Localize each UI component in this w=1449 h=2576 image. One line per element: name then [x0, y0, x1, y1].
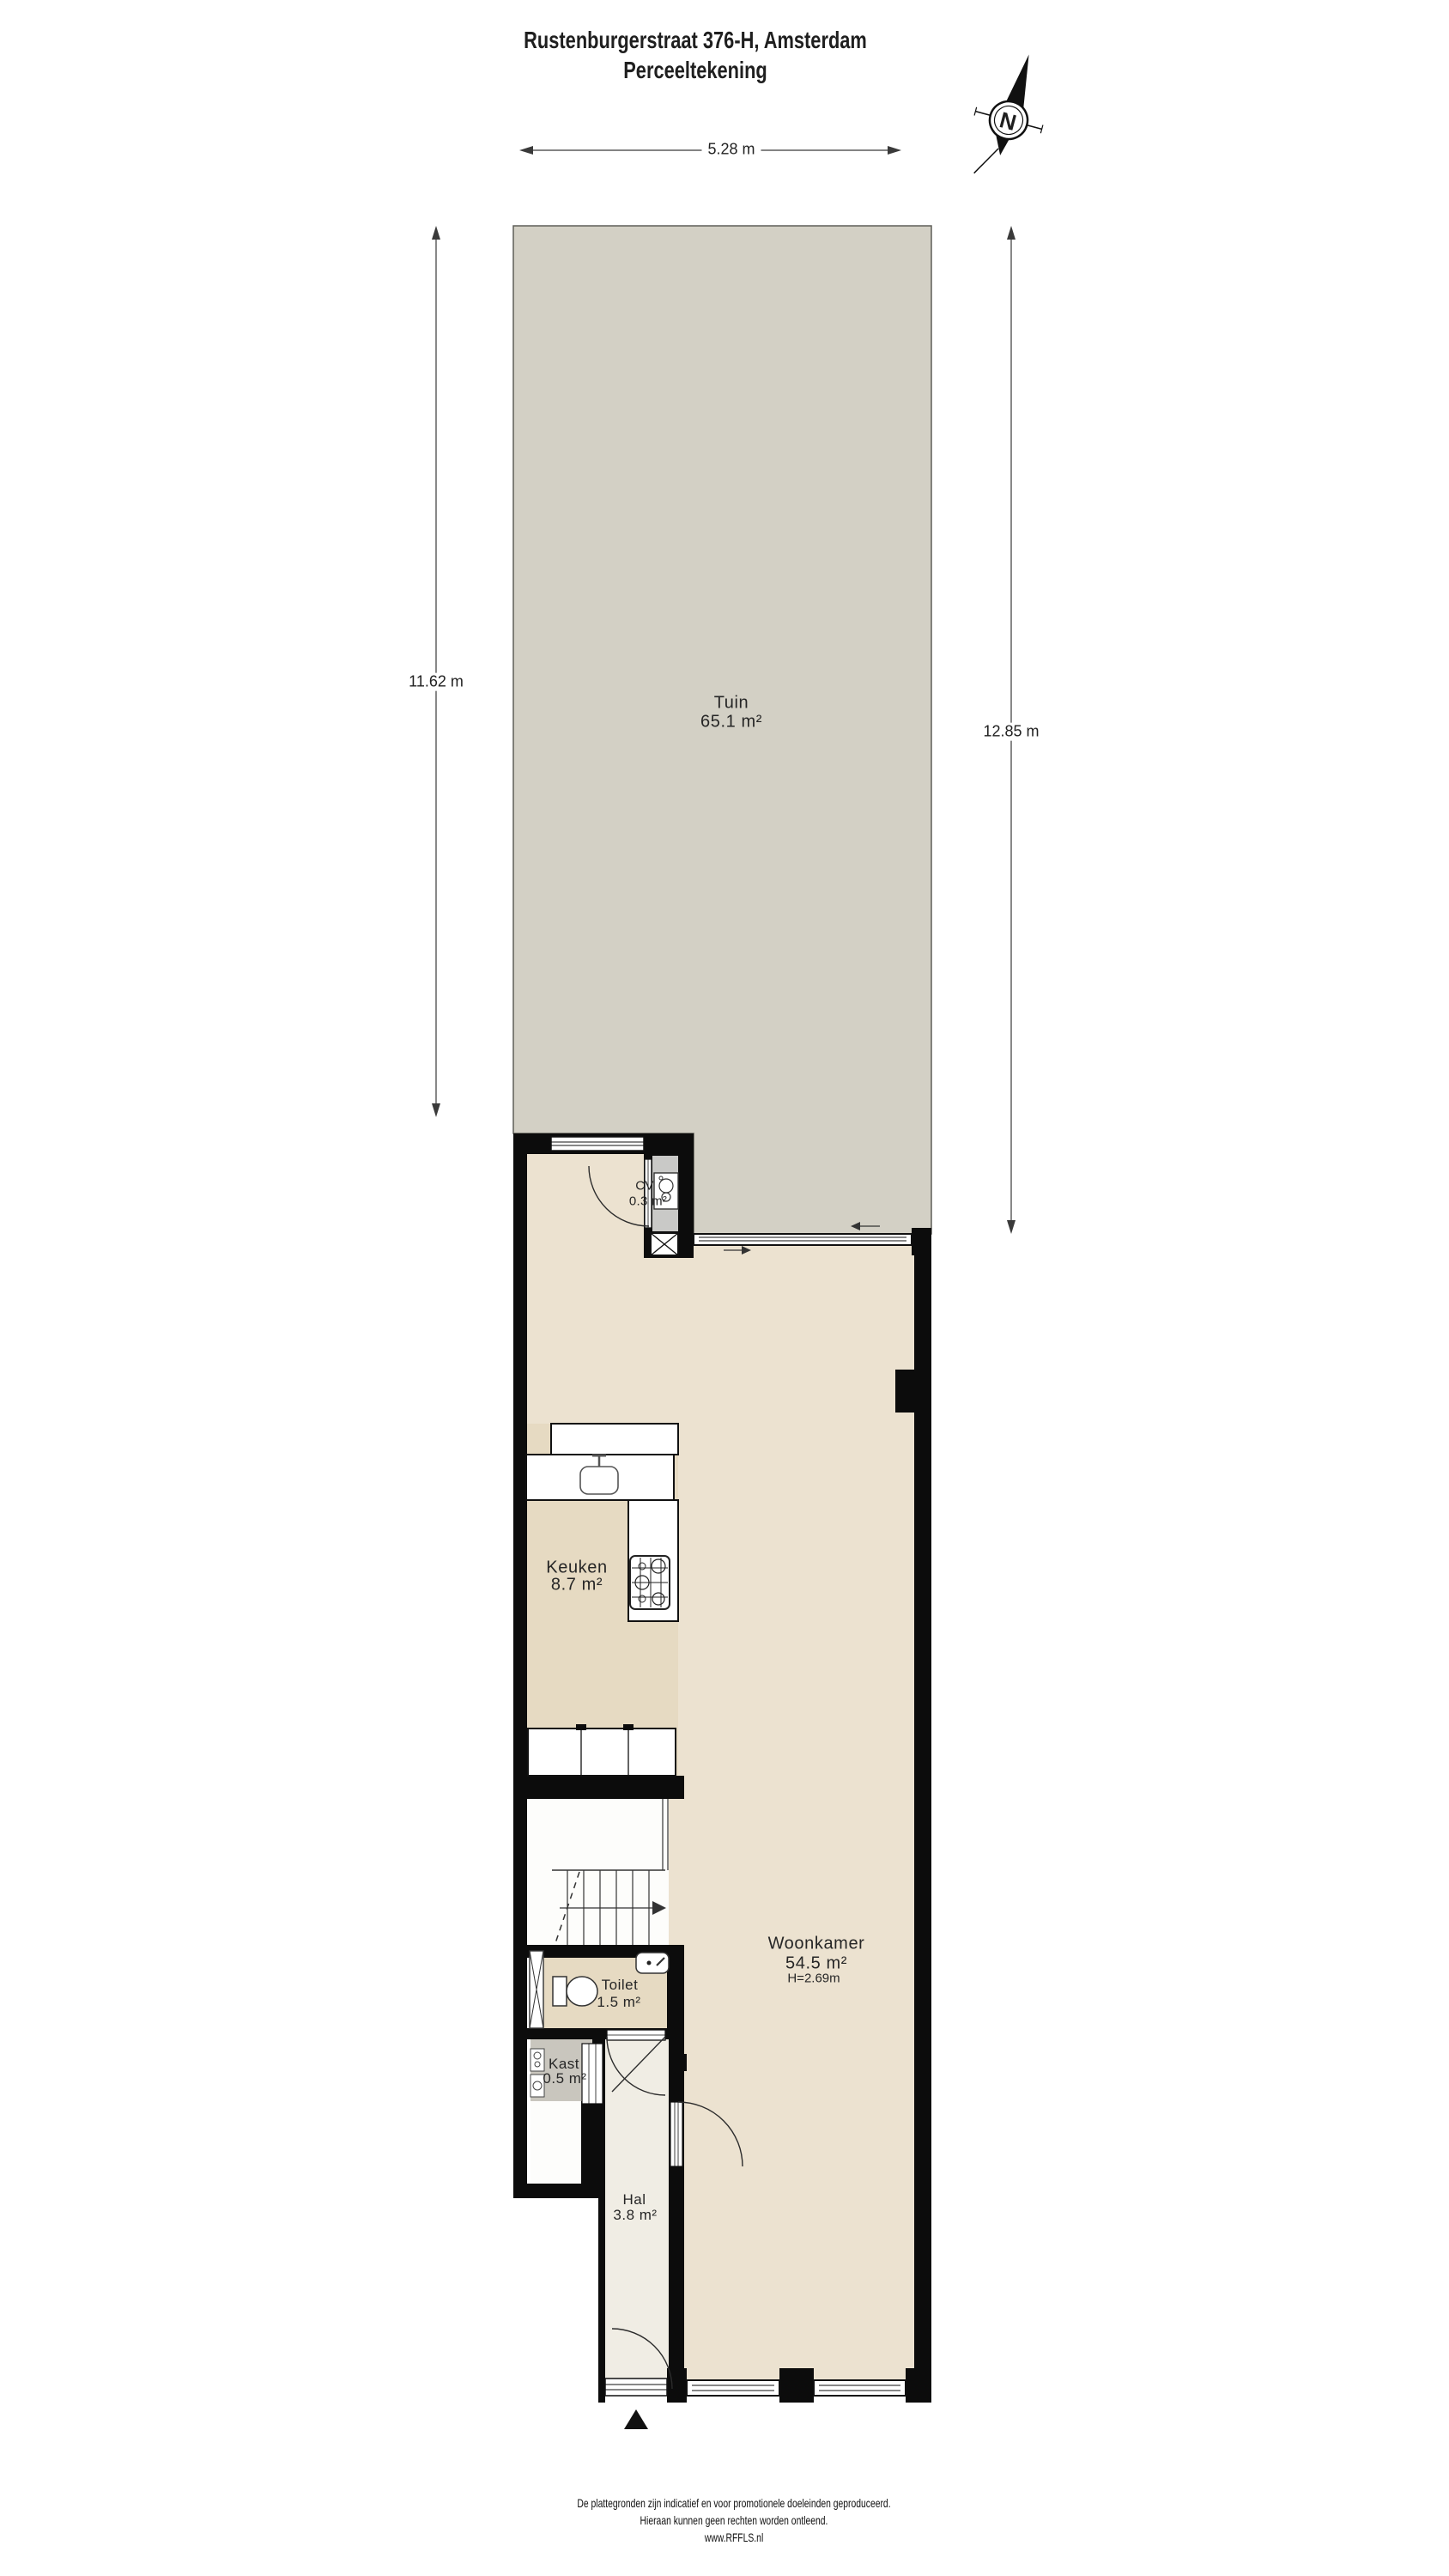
door-band-hall-living	[670, 2102, 682, 2166]
page-title-line1: Rustenburgerstraat 376-H, Amsterdam	[524, 27, 867, 54]
window-facade-right	[814, 2380, 906, 2396]
door-band-toilet	[607, 2030, 665, 2040]
shaft-box-icon	[651, 1233, 678, 1255]
room-area-cv: 0.3 m²	[629, 1194, 667, 1208]
room-area-toilet: 1.5 m²	[597, 1994, 640, 2011]
window-livingroom-rear	[694, 1234, 912, 1245]
room-label-hal: Hal	[622, 2191, 646, 2208]
counter-top	[551, 1424, 678, 1455]
room-label-toilet: Toilet	[602, 1977, 639, 1994]
room-area-tuin: 65.1 m²	[700, 713, 762, 732]
door-band-front	[605, 2379, 667, 2396]
room-label-tuin: Tuin	[714, 694, 749, 714]
room-label-cv: CV	[635, 1178, 653, 1193]
room-area-kast: 0.5 m²	[543, 2070, 586, 2087]
room-label-woonkamer: Woonkamer	[768, 1935, 865, 1954]
footer-website: www.RFFLS.nl	[705, 2530, 764, 2544]
entrance-marker-icon	[624, 2409, 648, 2429]
stove-icon	[630, 1556, 670, 1609]
room-area-keuken: 8.7 m²	[551, 1576, 603, 1595]
dimension-right-label: 12.85 m	[977, 723, 1045, 741]
dimension-left-label: 11.62 m	[403, 673, 470, 691]
footer-disclaimer-line2: Hieraan kunnen geen rechten worden ontle…	[640, 2513, 828, 2527]
floorplan-drawing	[0, 0, 1449, 2576]
toilet-icon	[553, 1977, 597, 2006]
dimension-top-label: 5.28 m	[701, 141, 761, 159]
washbasin-icon	[636, 1953, 669, 1973]
room-area-hal: 3.8 m²	[613, 2207, 657, 2224]
footer-disclaimer-line1: De plattegronden zijn indicatief en voor…	[577, 2496, 890, 2510]
window-extension-rear	[551, 1137, 644, 1151]
page-title-line2: Perceeltekening	[623, 57, 767, 84]
floorplan-page: Rustenburgerstraat 376-H, Amsterdam Perc…	[0, 0, 1449, 2576]
room-height-woonkamer: H=2.69m	[787, 1971, 840, 1985]
duct-shaft-icon	[530, 1951, 543, 2028]
counter-bottom	[528, 1728, 676, 1776]
window-facade-left	[687, 2380, 779, 2396]
